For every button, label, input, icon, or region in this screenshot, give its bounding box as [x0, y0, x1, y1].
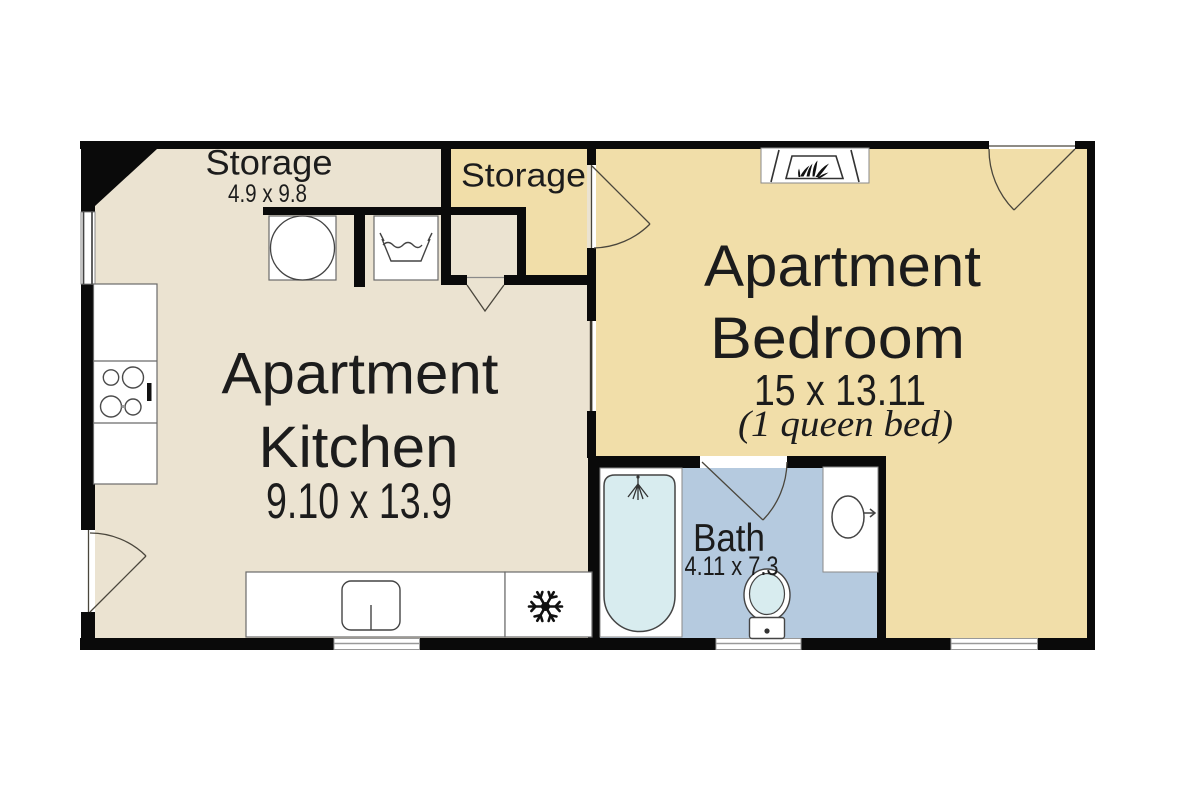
svg-text:4.11 x 7.3: 4.11 x 7.3	[685, 551, 779, 581]
svg-text:(1 queen bed): (1 queen bed)	[738, 404, 953, 445]
svg-text:Storage: Storage	[461, 157, 586, 194]
svg-text:Apartment: Apartment	[704, 234, 981, 299]
svg-text:Kitchen: Kitchen	[259, 415, 459, 480]
svg-text:Apartment: Apartment	[222, 342, 499, 407]
svg-text:Storage: Storage	[206, 144, 333, 183]
svg-text:9.10 x 13.9: 9.10 x 13.9	[266, 473, 452, 529]
svg-text:4.9 x 9.8: 4.9 x 9.8	[228, 180, 307, 208]
svg-text:Bedroom: Bedroom	[710, 306, 965, 371]
